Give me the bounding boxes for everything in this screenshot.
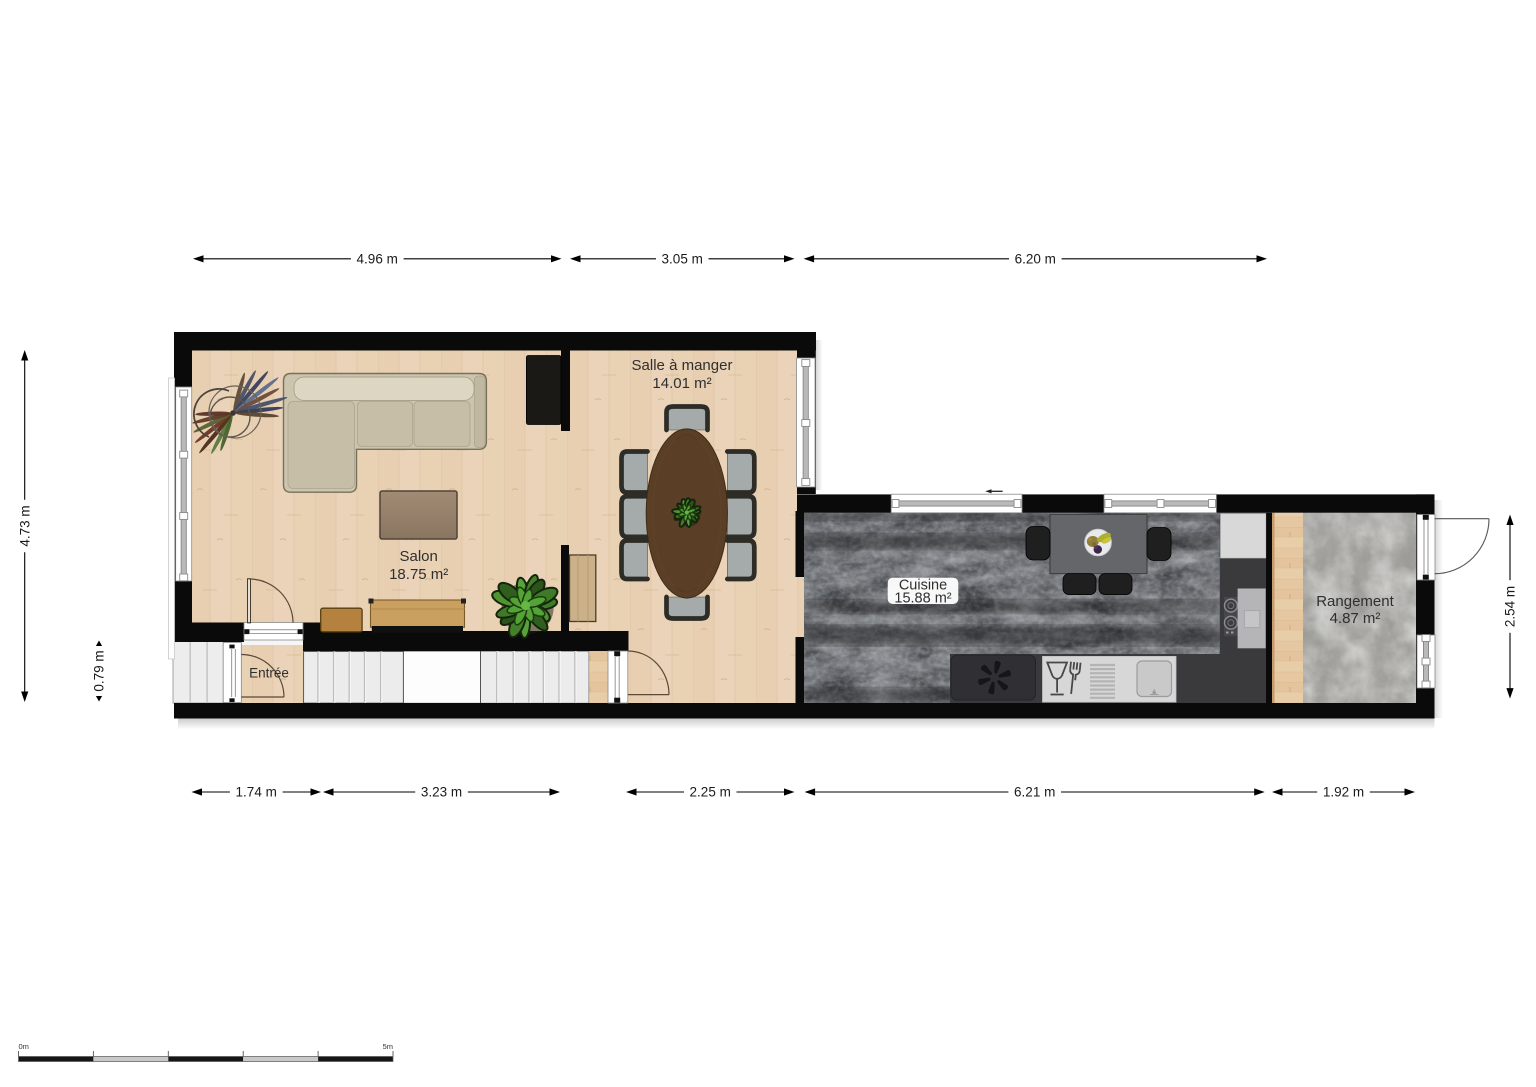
svg-text:0m: 0m [19, 1042, 29, 1051]
svg-text:1.74 m: 1.74 m [236, 785, 277, 800]
svg-text:6.21 m: 6.21 m [1014, 785, 1055, 800]
svg-text:Rangement: Rangement [1316, 593, 1394, 610]
svg-text:18.75 m²: 18.75 m² [389, 566, 448, 583]
svg-text:14.01 m²: 14.01 m² [652, 375, 711, 392]
svg-text:4.73 m: 4.73 m [17, 505, 32, 546]
svg-text:Entrée: Entrée [249, 666, 289, 681]
svg-text:4.96 m: 4.96 m [357, 251, 398, 266]
svg-text:4.87 m²: 4.87 m² [1330, 610, 1381, 627]
svg-text:Salon: Salon [400, 548, 438, 565]
svg-text:Salle à manger: Salle à manger [632, 357, 733, 374]
svg-text:0.79 m: 0.79 m [92, 650, 107, 691]
svg-text:6.20 m: 6.20 m [1015, 251, 1056, 266]
svg-text:2.54 m: 2.54 m [1503, 586, 1518, 627]
svg-text:3.23 m: 3.23 m [421, 785, 462, 800]
svg-text:15.88 m²: 15.88 m² [894, 591, 951, 607]
svg-text:3.05 m: 3.05 m [662, 251, 703, 266]
svg-text:5m: 5m [383, 1042, 393, 1051]
svg-text:2.25 m: 2.25 m [690, 785, 731, 800]
svg-text:1.92 m: 1.92 m [1323, 785, 1364, 800]
